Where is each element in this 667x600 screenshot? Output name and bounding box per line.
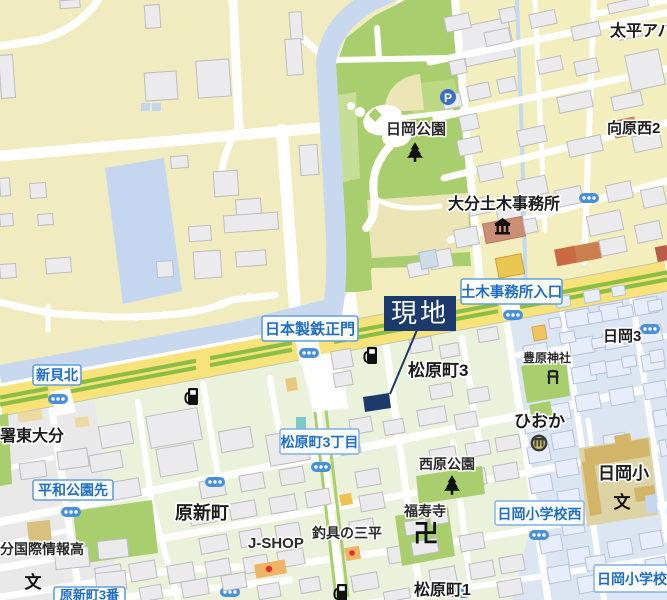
svg-text:西原公園: 西原公園: [419, 456, 475, 472]
svg-text:福寿寺: 福寿寺: [403, 503, 446, 519]
svg-text:日本製鉄正門: 日本製鉄正門: [265, 320, 355, 338]
svg-text:平和公園先: 平和公園先: [38, 482, 108, 498]
svg-text:ひおか: ひおか: [514, 412, 565, 431]
svg-text:松原町3: 松原町3: [408, 360, 468, 380]
svg-text:松原町3丁目: 松原町3丁目: [281, 434, 359, 450]
svg-text:現地: 現地: [391, 298, 449, 328]
svg-text:日岡小: 日岡小: [598, 464, 649, 483]
svg-text:文: 文: [614, 492, 632, 512]
svg-text:向原西2: 向原西2: [607, 119, 660, 137]
svg-text:P: P: [444, 91, 452, 105]
svg-text:原新町: 原新町: [175, 502, 229, 523]
svg-text:大分土木事務所: 大分土木事務所: [448, 194, 560, 213]
svg-text:J-SHOP: J-SHOP: [248, 535, 304, 552]
svg-text:文: 文: [25, 572, 43, 592]
svg-text:卍: 卍: [413, 520, 438, 548]
svg-text:松原町1: 松原町1: [414, 580, 471, 599]
svg-text:日岡公園: 日岡公園: [386, 121, 446, 138]
svg-text:太平アパート: 太平アパート: [609, 21, 667, 40]
svg-text:原新町3番: 原新町3番: [60, 588, 120, 600]
svg-text:豊原神社: 豊原神社: [523, 350, 571, 365]
svg-text:土木事務所入口: 土木事務所入口: [461, 283, 563, 301]
svg-text:新貝北: 新貝北: [36, 367, 78, 383]
svg-text:署東大分: 署東大分: [0, 426, 64, 445]
svg-text:日岡3: 日岡3: [603, 328, 641, 345]
svg-text:釣具の三平: 釣具の三平: [312, 525, 382, 541]
svg-text:日岡小学校西: 日岡小学校西: [498, 506, 582, 522]
svg-text:日岡小学校: 日岡小学校: [597, 571, 667, 587]
svg-text:分国際情報高: 分国際情報高: [0, 541, 84, 557]
